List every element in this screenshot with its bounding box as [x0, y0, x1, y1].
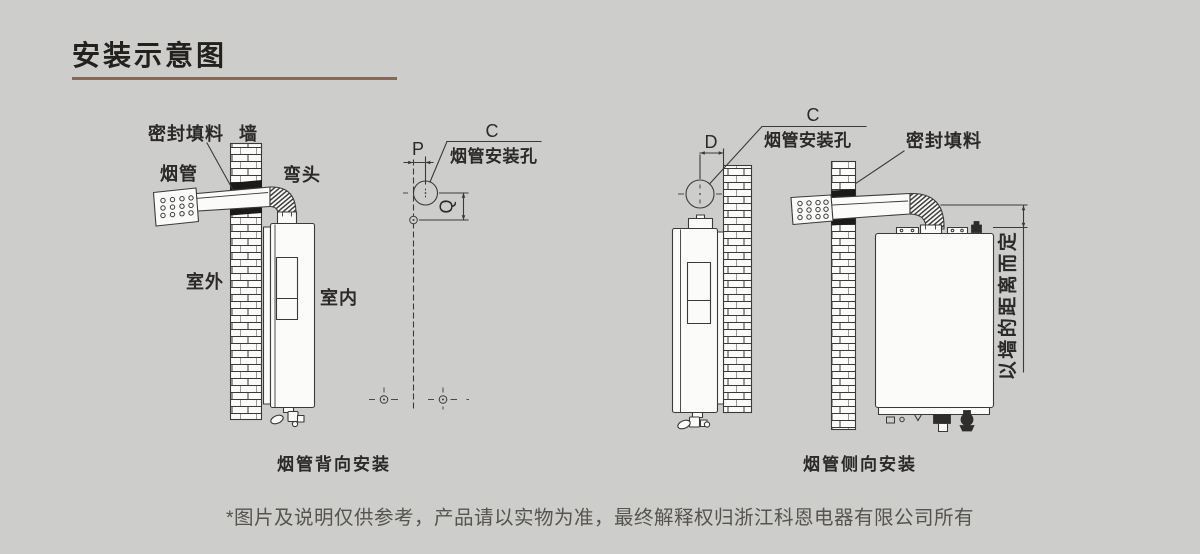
dim-c-label: C — [486, 121, 499, 141]
installation-line-art: 密封填料 墙 烟管 弯头 室外 室内 P — [0, 0, 1200, 554]
diagram-back-install: 密封填料 墙 烟管 弯头 室外 室内 — [148, 123, 358, 427]
label-flue-hole-side: 烟管安装孔 — [764, 130, 852, 150]
elbow-bend-side — [910, 194, 944, 230]
label-flue-hole: 烟管安装孔 — [450, 146, 538, 166]
bottom-fittings — [270, 408, 304, 427]
elbow-collar — [278, 212, 297, 224]
flue-terminal-cap-side — [791, 195, 833, 225]
seal-leader-line — [207, 143, 233, 190]
label-elbow: 弯头 — [283, 164, 321, 185]
flue-mount-hole-side — [678, 180, 722, 208]
installation-diagram-page: 安装示意图 — [0, 0, 1200, 554]
label-indoor: 室内 — [320, 287, 358, 308]
screw-holes — [369, 216, 469, 409]
label-flue: 烟管 — [160, 163, 198, 184]
label-outdoor: 室外 — [186, 271, 224, 292]
water-heater-side-view — [673, 215, 724, 430]
wall-side-a — [724, 166, 752, 413]
footnote-disclaimer: *图片及说明仅供参考，产品请以实物为准，最终解释权归浙江科恩电器有限公司所有 — [0, 501, 1200, 530]
dimension-d: D — [700, 132, 724, 179]
callout-c: C 烟管安装孔 — [430, 121, 541, 182]
elbow-collar-side — [921, 225, 942, 234]
label-seal-filler-side: 密封填料 — [906, 130, 982, 151]
label-distance-note: 以墙的距离而定 — [996, 230, 1019, 381]
label-wall: 墙 — [239, 123, 258, 144]
bottom-fittings — [677, 413, 710, 431]
water-heater-side-back — [264, 224, 315, 427]
dimension-q: Q — [420, 193, 469, 220]
dim-p-label: P — [412, 139, 424, 159]
elbow-bend — [270, 187, 296, 215]
dim-c-label-side: C — [807, 105, 820, 125]
drill-template: P C 烟管安装孔 Q — [369, 121, 541, 412]
dim-d-label: D — [705, 132, 718, 152]
caption-back-install: 烟管背向安装 — [277, 450, 391, 475]
diagram-side-install: D C 烟管安装孔 密封填料 — [673, 105, 1028, 432]
caption-side-install: 烟管侧向安装 — [803, 450, 917, 475]
water-heater-front-view — [876, 222, 994, 432]
flue-terminal-cap — [154, 188, 199, 226]
dim-q-label: Q — [437, 199, 457, 213]
dimension-p: P — [404, 139, 433, 184]
label-seal-filler: 密封填料 — [148, 123, 224, 144]
